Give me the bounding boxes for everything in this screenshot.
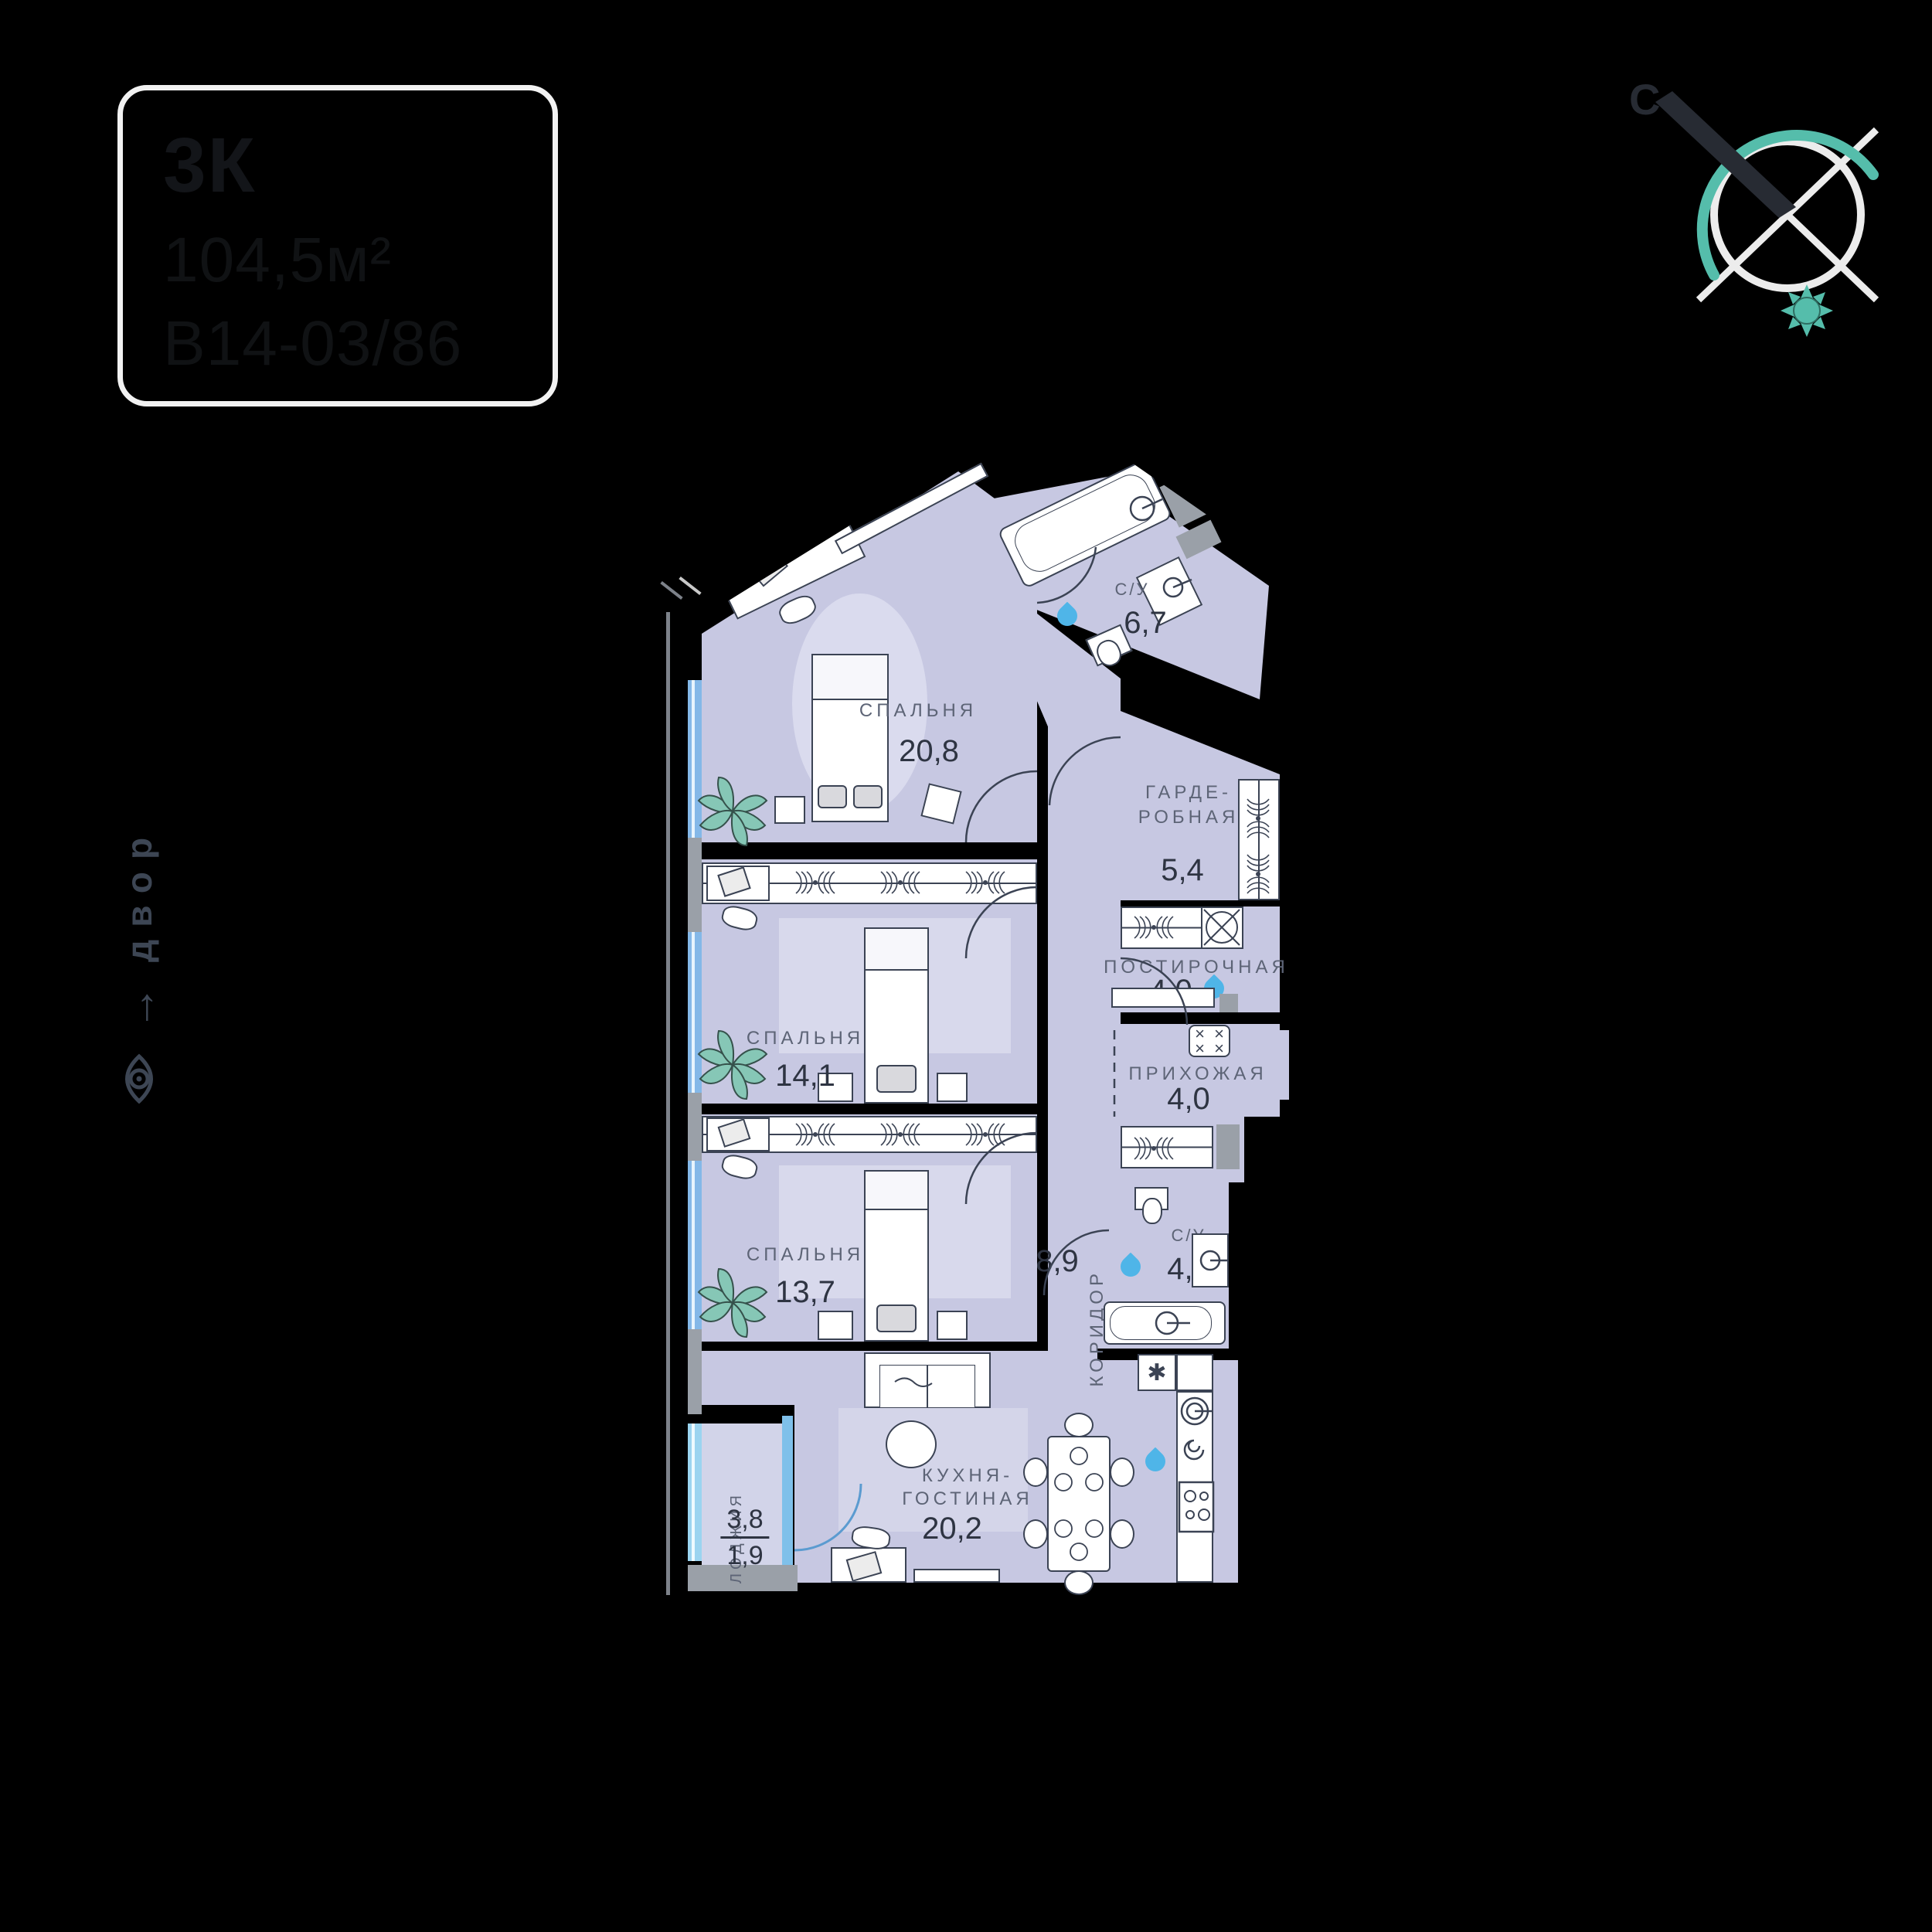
unit-number-label: В14-03/86 <box>163 308 553 380</box>
tub-tap <box>1156 1251 1227 1334</box>
oven-icon <box>1185 1440 1203 1459</box>
total-area-label: 104,5м² <box>163 224 553 297</box>
courtyard-label: двор <box>118 825 160 962</box>
stove-icon <box>1179 1482 1213 1532</box>
sofa-decor <box>895 1378 932 1386</box>
sun-icon <box>1781 284 1833 337</box>
floor-plan: СПАЛЬНЯ 20,8 С/У 6,7 ГАРДЕ- РОБНАЯ 5,4 П… <box>688 454 1298 1606</box>
compass-north-label: С <box>1629 75 1660 124</box>
screenshot-root: { "title_card": { "rooms_label": "3К", "… <box>0 0 1932 1932</box>
plan-detail-overlay <box>688 454 1298 1606</box>
table-plates <box>1055 1447 1103 1560</box>
plant-icon <box>699 777 767 845</box>
kitchen-sink-icon <box>1182 1398 1213 1424</box>
courtyard-arrow-icon: → <box>114 985 165 1030</box>
eye-icon <box>121 1053 157 1104</box>
plant-icon <box>699 1031 767 1099</box>
compass-rose-icon: С <box>1629 75 1876 300</box>
facade-tick <box>660 581 682 600</box>
courtyard-marker: → двор <box>85 792 193 1109</box>
door-arcs <box>966 547 1187 1295</box>
tub-tap-angled <box>1131 497 1192 597</box>
loggia-door-arc <box>794 1484 861 1550</box>
plant-icon <box>699 1269 767 1337</box>
facade-line <box>666 612 670 1595</box>
facade-tick <box>679 577 701 595</box>
washer-symbol <box>1204 910 1240 945</box>
title-card: 3К 104,5м² В14-03/86 <box>117 85 558 406</box>
compass-needle-icon <box>1655 91 1796 218</box>
rooms-count-label: 3К <box>163 121 553 210</box>
compass: С <box>1607 54 1932 379</box>
